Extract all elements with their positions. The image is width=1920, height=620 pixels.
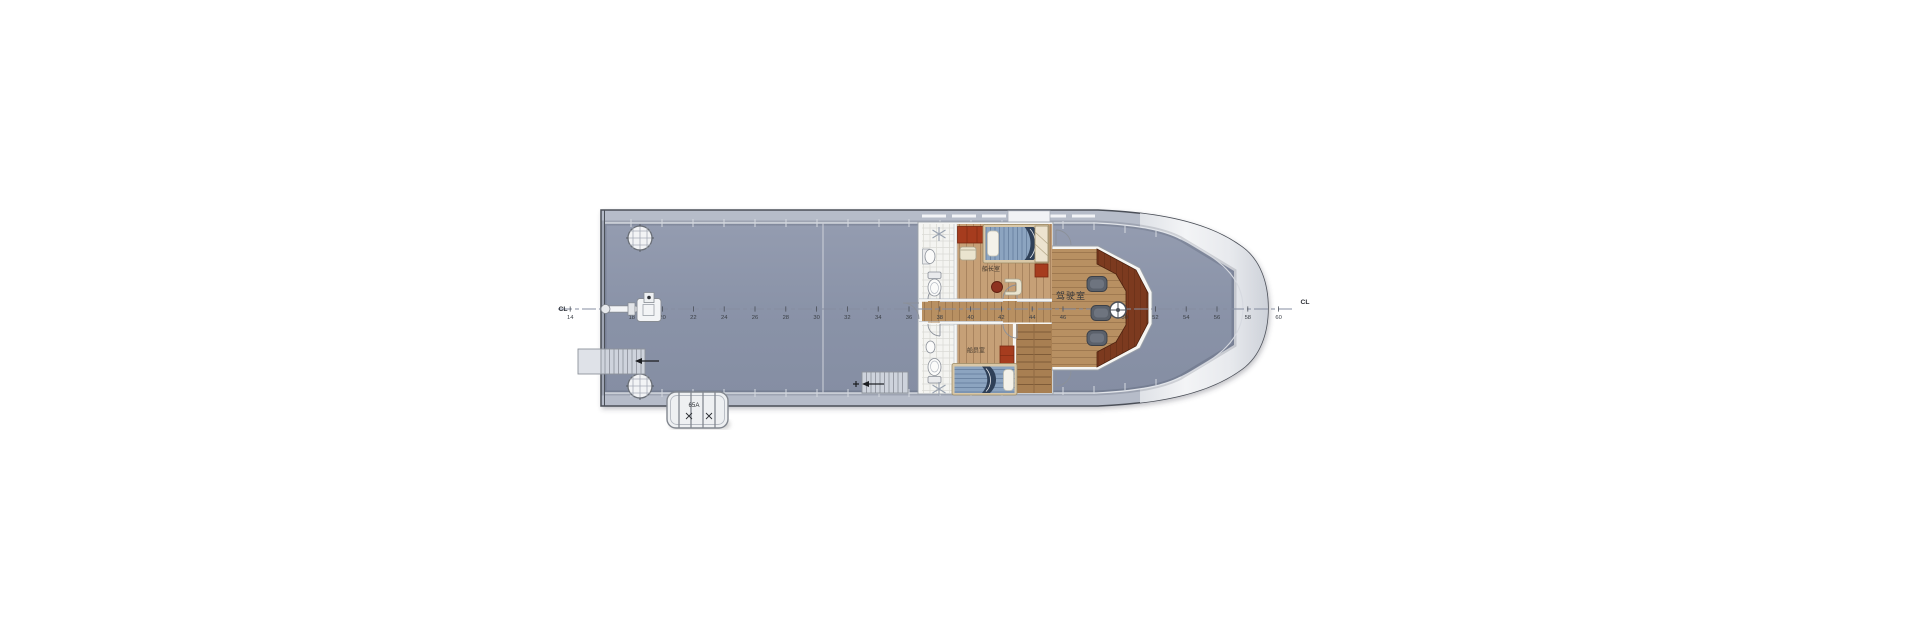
toilet-icon [928, 272, 941, 296]
helm-chair [1087, 277, 1107, 292]
station-number: 24 [721, 315, 728, 321]
deck-plan-canvas: 1418202224262830323436384042444650525456… [0, 0, 1920, 620]
liferaft-box: 65A [667, 392, 730, 429]
station-number: 14 [567, 315, 574, 321]
liferaft-label: 65A [688, 402, 700, 409]
pillow [1004, 370, 1014, 391]
station-number: 32 [844, 315, 850, 321]
dressing-chair [960, 247, 976, 260]
station-number: 18 [629, 315, 635, 321]
pillow [988, 231, 999, 256]
crew-bed [952, 364, 1017, 396]
captain-cabin-label: 船长室 [982, 265, 1000, 273]
crew-cabin-label: 船员室 [967, 347, 985, 355]
cabinet [1000, 346, 1014, 365]
station-number: 54 [1183, 315, 1190, 321]
station-number: 26 [752, 315, 758, 321]
bulwark-gate [1008, 211, 1050, 223]
station-number: 36 [906, 315, 912, 321]
station-number: 40 [967, 315, 973, 321]
station-number: 34 [875, 315, 882, 321]
cl-label-left: CL [558, 306, 567, 313]
dresser [958, 227, 987, 244]
station-number: 28 [783, 315, 789, 321]
station-number: 44 [1029, 315, 1036, 321]
station-number: 60 [1275, 315, 1281, 321]
helm-chair [1091, 306, 1111, 321]
station-number: 22 [690, 315, 696, 321]
helm-chair [1087, 331, 1107, 346]
station-number: 46 [1060, 315, 1066, 321]
toilet-icon [928, 359, 941, 384]
station-number: 38 [937, 315, 943, 321]
deck-plan-drawing: 1418202224262830323436384042444650525456… [0, 0, 1920, 620]
round-stool [992, 282, 1003, 293]
stern-stairs [578, 349, 645, 374]
station-number: 52 [1152, 315, 1158, 321]
station-number: 30 [813, 315, 819, 321]
station-number: 56 [1214, 315, 1220, 321]
side-table [1035, 264, 1048, 277]
sink-icon [923, 249, 936, 264]
wardrobe [1035, 226, 1048, 262]
station-number: 58 [1245, 315, 1251, 321]
station-number: 42 [998, 315, 1004, 321]
sink-icon [926, 341, 935, 353]
companionway-stairs [1016, 324, 1052, 393]
helm-wheel-icon [1110, 302, 1126, 318]
cl-label-right: CL [1300, 299, 1309, 306]
wheelhouse-label: 驾驶室 [1056, 290, 1086, 301]
